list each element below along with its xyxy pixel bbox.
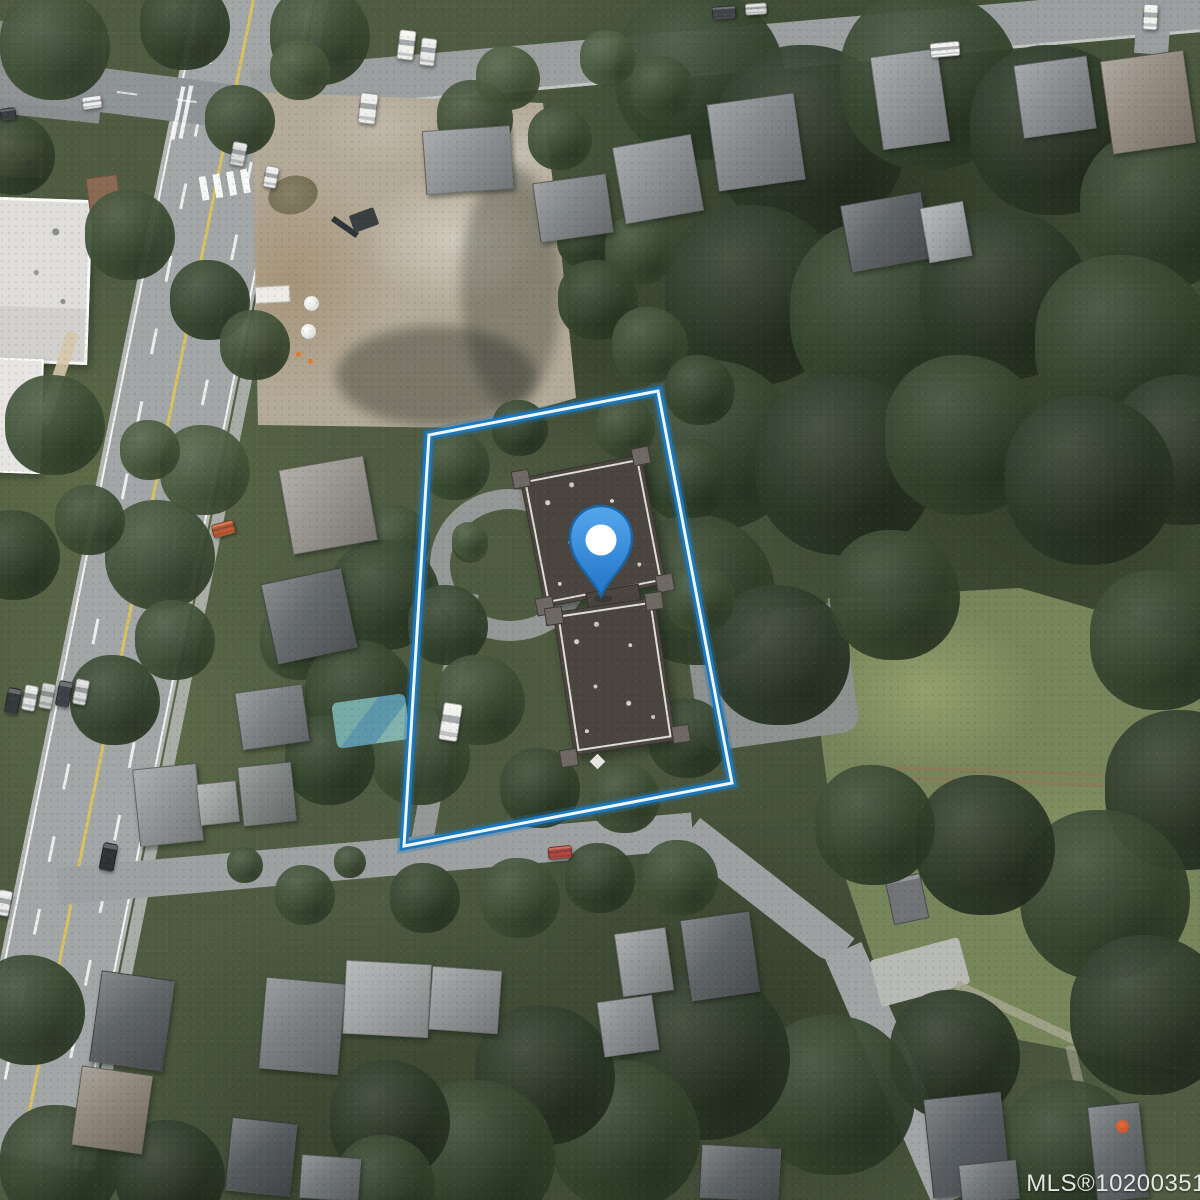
vehicle: [211, 519, 237, 538]
vehicle: [21, 684, 40, 712]
vehicle: [745, 2, 768, 16]
vehicle-layer: [0, 0, 1200, 1200]
vehicle: [72, 678, 91, 706]
vehicle: [712, 5, 737, 20]
vehicle: [0, 889, 13, 917]
vehicle: [98, 842, 118, 872]
vehicle: [0, 107, 17, 121]
vehicle: [418, 37, 437, 67]
vehicle: [1142, 4, 1158, 31]
vehicle: [262, 165, 280, 189]
vehicle: [38, 682, 57, 710]
vehicle: [55, 680, 74, 708]
vehicle: [4, 687, 23, 715]
vehicle: [357, 92, 379, 125]
satellite-map-canvas[interactable]: MLS®10200351: [0, 0, 1200, 1200]
vehicle: [547, 845, 572, 860]
vehicle: [929, 41, 960, 59]
vehicle: [81, 95, 103, 111]
vehicle: [229, 141, 248, 167]
vehicle: [396, 29, 417, 61]
vehicle: [438, 702, 463, 743]
